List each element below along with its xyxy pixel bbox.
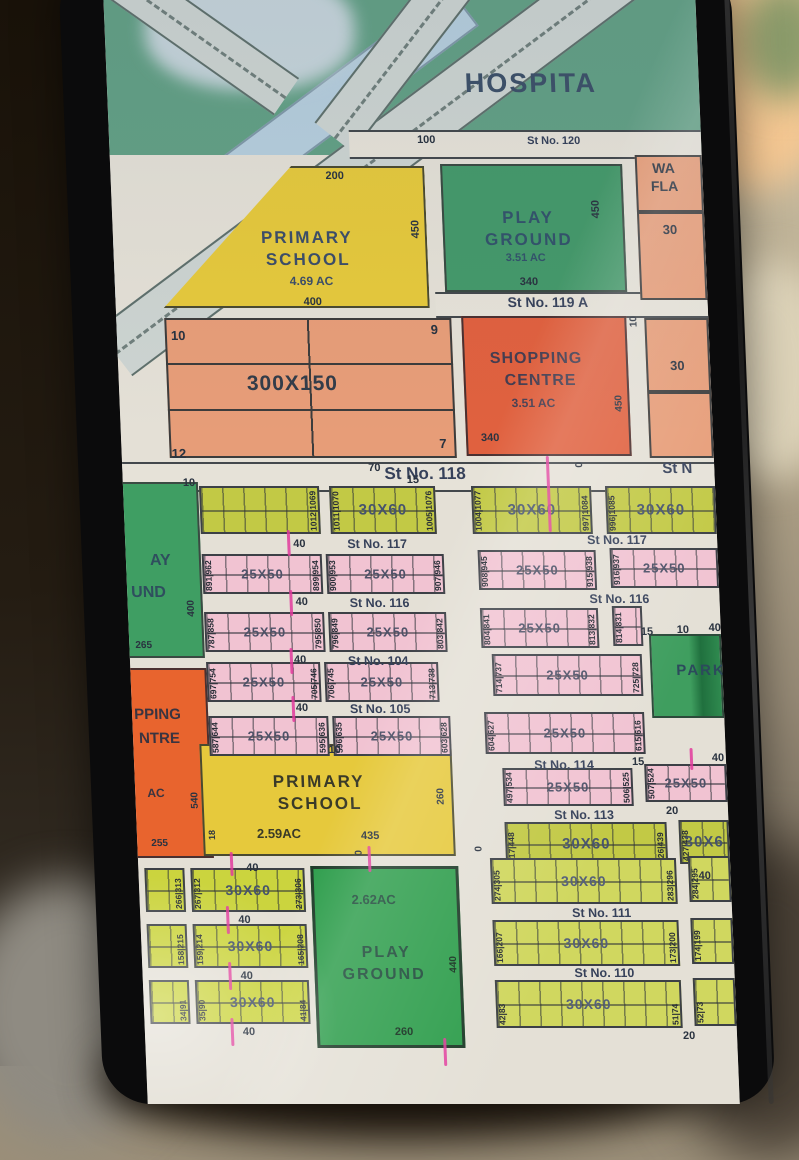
plot-number: 604|627 xyxy=(486,714,496,752)
dimension-label: 40 xyxy=(240,970,253,982)
dimension-label: 18 xyxy=(207,830,217,840)
plot-size-label: 25X50 xyxy=(366,625,409,640)
plot-number: 1004|1077 xyxy=(473,488,484,532)
plot-number: 1011|1070 xyxy=(331,488,342,532)
plot-block: 916|937 25X50 xyxy=(609,548,719,588)
plot-block: 900|953 25X50 907|946 xyxy=(326,554,446,594)
plot-number: 30 xyxy=(670,358,685,373)
plot-number: 915|938 xyxy=(585,552,595,588)
street-label-110: St No. 110 xyxy=(574,966,634,980)
dimension-label: 20 xyxy=(683,1030,696,1042)
dimension-label: 100 xyxy=(417,134,436,146)
plot-number: 587|644 xyxy=(210,718,220,754)
plot-block: 166|207 30X60 173|200 xyxy=(492,920,680,966)
street-label-120: St No. 120 xyxy=(527,135,581,147)
primary-school-lower-label1: PRIMARY xyxy=(272,772,365,792)
dimension-label: 400 xyxy=(303,296,322,308)
plot-number: 7 xyxy=(439,436,447,451)
play-ground-left-label1: AY xyxy=(150,552,171,570)
street-label-105: St No. 105 xyxy=(350,702,411,716)
plot-number: 804|841 xyxy=(482,610,492,646)
street-label-114: St No. 114 xyxy=(534,758,594,772)
plot-block: 267|312 30X60 273|306 xyxy=(190,868,306,912)
plot-number: 814|831 xyxy=(614,608,624,644)
plot-number: 166|207 xyxy=(494,922,505,964)
plot-number: 706|745 xyxy=(326,664,336,700)
plot-number: 34|91 xyxy=(178,982,189,1022)
plot-number: 795|850 xyxy=(313,614,323,650)
dimension-label: 40 xyxy=(296,702,309,714)
plot-number: 1012|1069 xyxy=(308,488,319,532)
plot-size-label: 30X60 xyxy=(561,873,607,889)
dimension-label: 40 xyxy=(238,914,251,926)
primary-school-lower-area: 2.59AC xyxy=(257,826,302,841)
plot-number: 174|199 xyxy=(692,920,703,962)
plot-size-label: 30X60 xyxy=(227,938,273,954)
play-ground-top-label2: GROUND xyxy=(485,230,573,250)
plot-number: 283|296 xyxy=(665,860,676,902)
street-label-119a: St No. 119 A xyxy=(507,294,588,310)
hospital-label: HOSPITA xyxy=(464,68,597,99)
plot-number: 615|616 xyxy=(633,714,643,752)
plot-number: 165|208 xyxy=(296,926,307,966)
shopping-centre-left xyxy=(110,668,214,858)
flats-label2: FLA xyxy=(651,178,679,194)
plot-block: 706|745 25X50 713|738 xyxy=(324,662,440,702)
plot-number: 787|858 xyxy=(206,614,216,650)
shopping-centre-left-label2: NTRE xyxy=(139,730,181,747)
plot-size-label: 25X50 xyxy=(241,567,284,582)
plot-block: 787|858 25X50 795|850 xyxy=(204,612,326,652)
dimension-label: 40 xyxy=(246,862,259,874)
plot-size-label: 25X50 xyxy=(242,675,285,690)
plot-number: 51|74 xyxy=(670,982,681,1026)
plot-block: 174|199 xyxy=(690,918,734,964)
plot-number: 996|1085 xyxy=(607,488,618,532)
plot-number: 497|534 xyxy=(504,770,514,804)
plot-size-label: 30X60 xyxy=(563,935,609,951)
plot-number: 1005|1076 xyxy=(424,488,435,532)
plot-block: 804|841 25X50 813|832 xyxy=(480,608,600,648)
dimension-label: 450 xyxy=(589,200,602,218)
primary-school-lower-label2: SCHOOL xyxy=(277,794,363,814)
play-ground-top-area: 3.51 AC xyxy=(506,252,546,264)
plot-block: 266|313 xyxy=(144,868,186,912)
plot-number: 274|305 xyxy=(492,860,503,902)
plot-number: 803|842 xyxy=(435,614,445,650)
plot-size-label: 30X60 xyxy=(230,994,276,1010)
primary-school-top-label2: SCHOOL xyxy=(265,250,351,270)
dimension-label: 10 xyxy=(183,477,196,489)
shopping-centre-label2: CENTRE xyxy=(504,372,577,390)
dimension-label: 200 xyxy=(325,170,344,182)
plot-block: 587|644 25X50 595|636 xyxy=(208,716,330,756)
flats-label1: WA xyxy=(652,160,675,176)
plot-number: 891|962 xyxy=(204,556,214,592)
dimension-label: 40 xyxy=(708,622,721,634)
plot-number: 714|737 xyxy=(494,656,504,694)
plot-block: 796|849 25X50 803|842 xyxy=(328,612,448,652)
phone-screen: HOSPITA 100 St No. 120 200 450 PRIMARY S… xyxy=(103,0,739,1104)
plot-block: 1004|1077 30X60 997|1084 xyxy=(471,486,593,534)
plot-size-label: 30X6 xyxy=(684,834,724,851)
plot-number: 705|746 xyxy=(309,664,319,700)
plot-size-label: 25X50 xyxy=(664,776,707,791)
plot-number: 35|90 xyxy=(197,982,208,1022)
plot-block: 604|627 25X50 615|616 xyxy=(484,712,646,754)
dimension-label: 10 xyxy=(677,624,690,636)
plot-number: 273|306 xyxy=(293,870,304,910)
shopping-centre-label1: SHOPPING xyxy=(490,350,583,368)
plot-block: 1012|1069 xyxy=(199,486,321,534)
plot-number: 813|832 xyxy=(587,610,597,646)
housing-scheme-map: HOSPITA 100 St No. 120 200 450 PRIMARY S… xyxy=(103,0,739,1104)
plot-size-label: 30X60 xyxy=(566,996,612,1012)
dimension-label: 450 xyxy=(613,395,625,412)
plot-size-label: 25X50 xyxy=(370,729,413,744)
plot-block: 34|91 xyxy=(149,980,191,1024)
dimension-label: 260 xyxy=(435,788,447,805)
dimension-label: 255 xyxy=(151,838,168,849)
dimension-label: 435 xyxy=(361,830,380,842)
dimension-label: 40 xyxy=(293,538,306,550)
dimension-label: 265 xyxy=(135,640,152,651)
plot-number: 725|728 xyxy=(631,656,641,694)
plot-block: 158|215 xyxy=(147,924,189,968)
dimension-label: 70 xyxy=(368,462,381,474)
plot-block: 908|945 25X50 915|938 xyxy=(478,550,598,590)
plot-number: 267|312 xyxy=(192,870,203,910)
dimension-label: 10 xyxy=(628,316,639,327)
plot-number: 507|524 xyxy=(646,766,656,800)
dimension-label: 10 xyxy=(328,744,341,756)
plot-number: 916|937 xyxy=(612,550,622,586)
dimension-label: 40 xyxy=(295,596,308,608)
plot-block: 274|305 30X60 283|296 xyxy=(490,858,678,904)
plot-size-label: 30X60 xyxy=(562,836,611,853)
street-label-116-right: St No. 116 xyxy=(589,592,649,606)
play-ground-lower-area: 2.62AC xyxy=(351,892,396,907)
play-ground-left-label2: UND xyxy=(131,584,166,602)
play-ground-lower-label2: GROUND xyxy=(342,966,426,984)
street-label-113: St No. 113 xyxy=(554,808,614,822)
street-label-104: St No. 104 xyxy=(348,654,409,668)
plot-block: 996|1085 30X60 xyxy=(605,486,717,534)
plot-number: 266|313 xyxy=(173,870,184,910)
plot-size-label: 25X50 xyxy=(247,729,290,744)
plot-number: 30 xyxy=(662,222,677,237)
street-label-117: St No. 117 xyxy=(347,537,407,551)
plot-size-label: 25X50 xyxy=(643,561,686,576)
street-label-118-right: St N xyxy=(662,460,693,477)
plot-block: 596|635 25X50 603|628 xyxy=(332,716,452,756)
plot-number: 796|849 xyxy=(330,614,340,650)
plot-block: 814|831 xyxy=(612,606,644,646)
plot-block: 52|73 xyxy=(693,978,737,1026)
plot-number: 9 xyxy=(430,322,438,337)
dimension-label: 0 xyxy=(473,846,484,852)
plot-size-label: 30X60 xyxy=(636,502,685,519)
plot-number: 52|73 xyxy=(695,980,706,1024)
street-label-111: St No. 111 xyxy=(572,906,632,920)
block-300x150-label: 300X150 xyxy=(246,372,338,396)
flats-plot-30b xyxy=(644,318,711,392)
plot-number: 907|946 xyxy=(433,556,443,592)
plot-number: 603|628 xyxy=(439,718,449,754)
dimension-label: 540 xyxy=(189,792,201,809)
plot-block: 159|214 30X60 165|208 xyxy=(193,924,309,968)
plot-number: 42|83 xyxy=(497,982,508,1026)
plot-block: 497|534 25X50 506|525 xyxy=(502,768,634,806)
plot-number: 158|215 xyxy=(176,926,187,966)
plot-block: 507|524 25X50 xyxy=(644,764,728,802)
plot-number: 173|200 xyxy=(668,922,679,964)
dimension-label: 40 xyxy=(698,870,711,882)
plot-number: 713|738 xyxy=(427,664,437,700)
dimension-label: 0 xyxy=(354,850,365,856)
dimension-label: 20 xyxy=(666,805,679,817)
plot-size-label: 25X50 xyxy=(518,621,561,636)
plot-block: 697|754 25X50 705|746 xyxy=(206,662,322,702)
plot-block: 42|83 30X60 51|74 xyxy=(495,980,683,1028)
plot-number: 697|754 xyxy=(208,664,218,700)
plot-number: 595|636 xyxy=(317,718,327,754)
plot-number: 997|1084 xyxy=(580,488,591,532)
plot-number: 159|214 xyxy=(195,926,206,966)
dimension-label: 40 xyxy=(294,654,307,666)
dimension-label: 15 xyxy=(406,474,419,486)
plot-size-label: 25X50 xyxy=(364,567,407,582)
plot-size-label: 30X60 xyxy=(225,882,271,898)
play-ground-left xyxy=(103,482,204,658)
street-label-117-right: St No. 117 xyxy=(587,533,647,547)
plot-number: 12 xyxy=(171,446,186,461)
shopping-centre-area: 3.51 AC xyxy=(511,396,555,410)
plot-size-label: 25X50 xyxy=(360,675,403,690)
plot-size-label: 30X60 xyxy=(358,502,407,519)
plot-number: 899|954 xyxy=(311,556,321,592)
dimension-label: 340 xyxy=(520,276,539,288)
street-label-116: St No. 116 xyxy=(349,596,409,610)
play-ground-top-label1: PLAY xyxy=(502,208,555,228)
dimension-label: 450 xyxy=(409,220,422,238)
plot-size-label: 25X50 xyxy=(546,780,589,795)
plot-block: 1011|1070 30X60 1005|1076 xyxy=(329,486,437,534)
plot-block: 891|962 25X50 899|954 xyxy=(202,554,324,594)
plot-number: 908|945 xyxy=(480,552,490,588)
plot-block: 714|737 25X50 725|728 xyxy=(492,654,644,696)
shopping-centre-left-area: AC xyxy=(147,786,165,800)
street-label-118: St No. 118 xyxy=(384,464,466,484)
plot-size-label: 25X50 xyxy=(546,668,589,683)
park-label: PARK xyxy=(676,662,726,679)
dimension-label: 40 xyxy=(712,752,725,764)
primary-school-top-area: 4.69 AC xyxy=(289,274,333,288)
dimension-label: 260 xyxy=(395,1026,414,1038)
shopping-centre-left-label1: PPING xyxy=(134,706,181,723)
dimension-label: 0 xyxy=(574,462,585,468)
plot-size-label: 25X50 xyxy=(516,563,559,578)
plot-size-label: 25X50 xyxy=(243,625,286,640)
primary-school-top-label1: PRIMARY xyxy=(261,228,354,248)
flats-plot-extra xyxy=(647,392,714,458)
dimension-label: 15 xyxy=(641,626,654,638)
play-ground-lower-label1: PLAY xyxy=(361,944,411,962)
plot-number: 41|84 xyxy=(298,982,309,1022)
plot-size-label: 25X50 xyxy=(543,726,586,741)
plot-number: 900|953 xyxy=(328,556,338,592)
dimension-label: 40 xyxy=(243,1026,256,1038)
play-ground-top xyxy=(440,164,627,292)
dimension-label: 400 xyxy=(186,600,198,617)
plot-block: 35|90 30X60 41|84 xyxy=(195,980,311,1024)
dimension-label: 440 xyxy=(448,956,460,973)
dimension-label: 340 xyxy=(481,432,500,444)
plot-number: 506|525 xyxy=(621,770,631,804)
dimension-label: 15 xyxy=(632,756,645,768)
plot-number: 10 xyxy=(171,328,186,343)
phone-bezel: HOSPITA 100 St No. 120 200 450 PRIMARY S… xyxy=(58,0,776,1104)
